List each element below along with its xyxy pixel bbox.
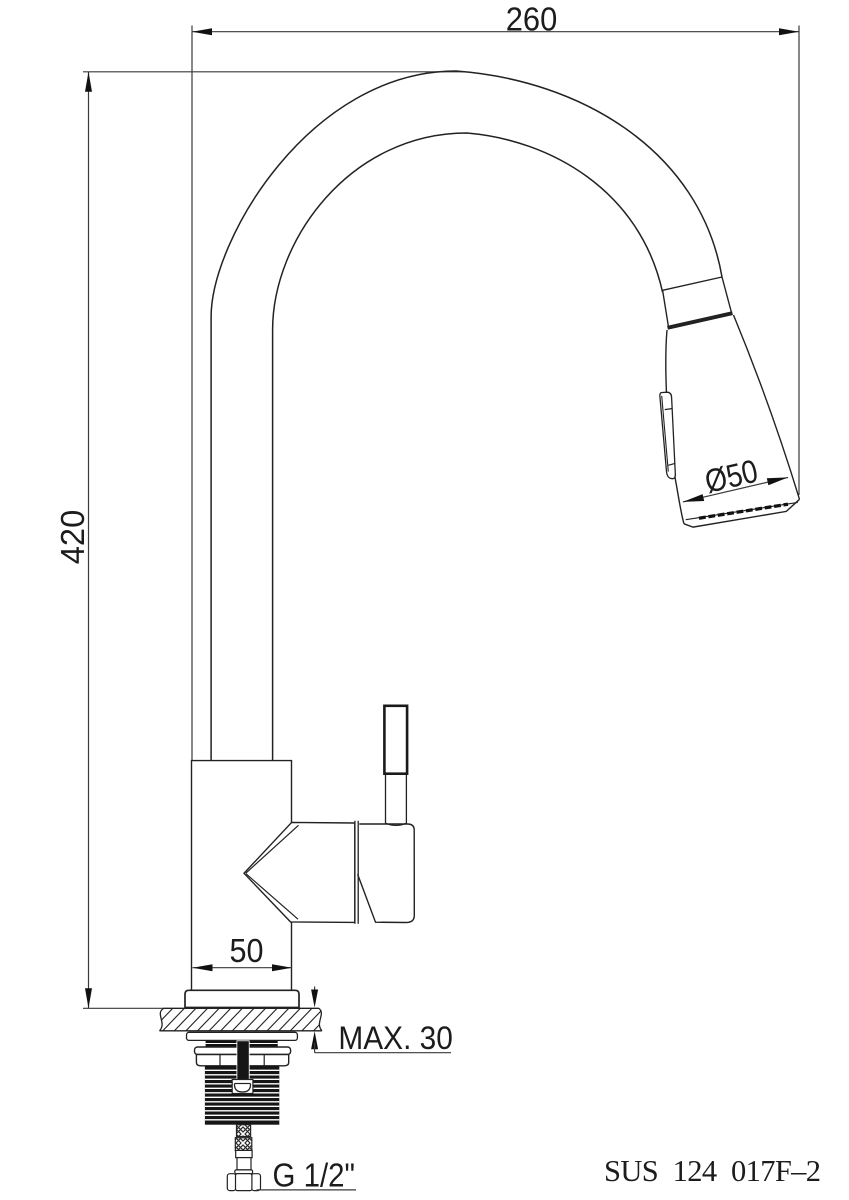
svg-text:SUS 124 017F–2: SUS 124 017F–2: [604, 1154, 821, 1188]
svg-text:260: 260: [506, 1, 558, 38]
svg-text:MAX. 30: MAX. 30: [338, 1020, 453, 1056]
svg-text:50: 50: [230, 933, 264, 970]
svg-text:G 1/2": G 1/2": [273, 1158, 356, 1195]
svg-text:420: 420: [55, 510, 92, 565]
